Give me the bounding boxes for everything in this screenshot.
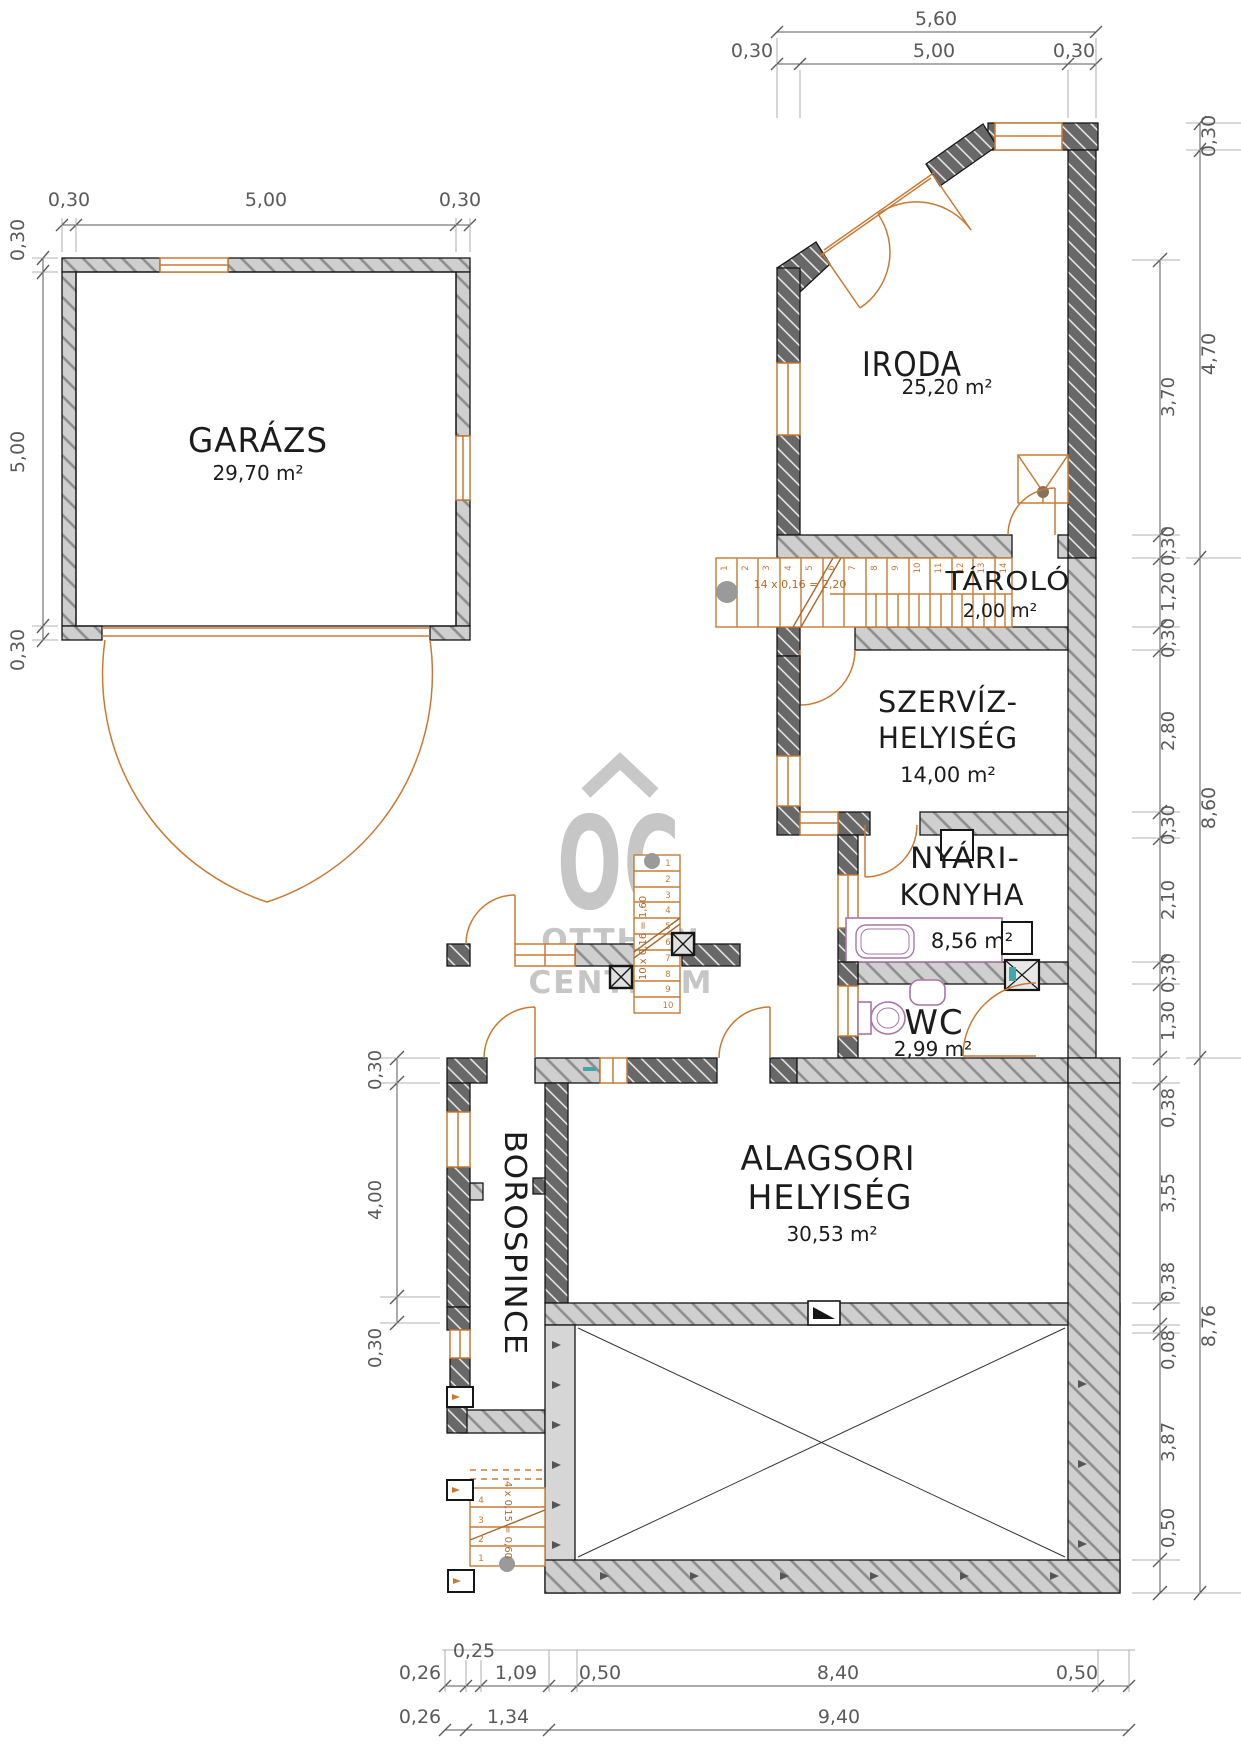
dim-label: 0,26 — [399, 1662, 441, 1684]
wall-segment — [797, 1058, 1068, 1083]
step-number: 4 — [665, 906, 670, 916]
szerviz-label-line2: HELYISÉG — [878, 721, 1018, 755]
dim-label: 1,34 — [487, 1706, 529, 1728]
lower-row-openings — [484, 1007, 770, 1083]
step-number: 5 — [805, 565, 815, 570]
dim-extensions — [32, 258, 58, 640]
stair-start-dot — [716, 581, 738, 603]
garage-door — [102, 628, 432, 902]
step-number: 3 — [478, 1516, 484, 1526]
step-number: 11 — [934, 563, 944, 574]
wall-segment — [1039, 962, 1068, 984]
wall-segment — [62, 272, 76, 626]
dim-label: 0,30 — [1158, 526, 1179, 566]
wall-segment — [777, 656, 800, 756]
wall-segment — [1068, 1083, 1120, 1593]
door-arc — [963, 983, 1036, 1056]
dim-label: 0,25 — [453, 1640, 495, 1662]
dim-label: 8,40 — [817, 1662, 859, 1684]
wall-segment — [777, 435, 800, 535]
wall-segment — [456, 272, 470, 436]
door-frame — [824, 172, 935, 250]
wall-segment — [777, 535, 1012, 558]
dim-label: 0,50 — [1158, 1508, 1179, 1548]
step-number: 6 — [665, 938, 670, 948]
door-leaf — [822, 253, 860, 308]
step-number: 4 — [784, 565, 794, 570]
szerviz-label-line1: SZERVÍZ- — [878, 685, 1018, 719]
door-arc — [103, 640, 267, 902]
dim-label: 3,70 — [1158, 377, 1179, 417]
tarolo-label: TÁROLÓ — [944, 565, 1070, 597]
wall-segment — [770, 1058, 797, 1083]
iroda-area: 25,20 m² — [901, 375, 992, 399]
dim-label: 0,50 — [1056, 1662, 1098, 1684]
washbasin — [910, 980, 945, 1005]
chimney-flue — [1005, 960, 1039, 990]
toilet-seat — [877, 1008, 899, 1028]
dim-label: 9,40 — [818, 1706, 860, 1728]
step-number: 9 — [891, 565, 901, 570]
szerviz-area: 14,00 m² — [900, 763, 996, 787]
dim-label: 5,60 — [915, 8, 957, 30]
wall-segment — [545, 1083, 568, 1303]
borospince-label: BOROSPINCE — [497, 1131, 532, 1356]
konyha-label-line1: NYÁRI- — [910, 841, 1020, 875]
toilet-tank — [858, 1002, 871, 1034]
step-number: 10 — [663, 1001, 674, 1011]
wall-segment — [62, 626, 102, 640]
wall-segment — [777, 268, 800, 363]
dim-label: 0,30 — [365, 1050, 386, 1090]
wall-segment — [777, 806, 800, 835]
wall-segment — [447, 1058, 487, 1083]
door-arc — [484, 1007, 535, 1058]
wall-segment — [838, 962, 858, 986]
dim-label: 0,30 — [1158, 805, 1179, 845]
wall-segment — [447, 1167, 470, 1307]
door-arc — [860, 214, 890, 308]
dim-label: 0,30 — [1053, 40, 1095, 62]
konyha-area: 8,56 m² — [931, 929, 1013, 953]
door-leaf — [933, 175, 971, 230]
wall-segment — [228, 258, 470, 272]
dim-label: 0,30 — [365, 1328, 386, 1368]
dim-label: 0,38 — [1158, 1088, 1179, 1128]
dim-label: 0,08 — [1158, 1330, 1179, 1370]
garage-area: 29,70 m² — [212, 461, 303, 485]
door-frame — [820, 178, 931, 256]
dim-label: 5,00 — [7, 431, 29, 473]
step-number: 7 — [665, 954, 670, 964]
wall-segment — [1068, 558, 1096, 1058]
dim-label: 1,09 — [495, 1662, 537, 1684]
dim-label: 0,30 — [1198, 115, 1220, 157]
tarolo-area: 2,00 m² — [963, 600, 1037, 622]
dim-label: 3,55 — [1158, 1173, 1179, 1213]
dim-label: 0,30 — [48, 189, 90, 211]
alagsori-vent — [808, 1301, 840, 1325]
terrace-left-wall — [545, 1325, 575, 1593]
dim-extensions — [380, 1058, 440, 1323]
dim-extensions — [1132, 123, 1241, 1593]
dim-label: 0,30 — [7, 629, 29, 671]
wall-segment — [838, 835, 858, 875]
terrace — [545, 1325, 1120, 1593]
alagsori-label-line2: HELYISÉG — [748, 1177, 913, 1218]
step-number: 2 — [665, 875, 670, 885]
garage-openings — [102, 258, 470, 902]
wall-segment — [1068, 150, 1096, 558]
fireplace-dot — [1037, 486, 1049, 498]
step-number: 10 — [913, 563, 923, 574]
floor-plan-page: OC OTTHON CENTRUM GARÁZS 29,70 m² — [0, 0, 1241, 1754]
stair-start-dot — [644, 853, 660, 869]
step-number: 5 — [665, 922, 670, 932]
step-number: 6 — [827, 565, 837, 570]
fireplace — [1018, 455, 1068, 503]
wall-nub — [470, 1183, 483, 1200]
lower-row-walls — [447, 1058, 1120, 1083]
stair-small-label: 4 x 0,15 = 0,60 — [502, 1481, 513, 1559]
kitchen-sink-basin — [861, 929, 909, 954]
door-arc — [466, 895, 515, 944]
step-number: 2 — [741, 565, 751, 570]
wall-segment — [777, 627, 800, 656]
dim-label: 0,30 — [439, 189, 481, 211]
step-number: 8 — [665, 970, 670, 980]
door-arc — [878, 202, 971, 230]
dim-label: 5,00 — [245, 189, 287, 211]
step-number: 9 — [665, 985, 670, 995]
wall-segment — [447, 944, 470, 966]
dim-label: 5,00 — [913, 40, 955, 62]
step-number: 1 — [478, 1554, 484, 1564]
dim-label: 1,30 — [1158, 1001, 1179, 1041]
dim-label: 0,30 — [1158, 618, 1179, 658]
wall-segment — [62, 258, 160, 272]
dim-label: 4,70 — [1198, 333, 1220, 375]
watermark-chevron-icon — [586, 761, 654, 793]
dim-label: 0,38 — [1158, 1262, 1179, 1302]
wall-segment — [430, 626, 470, 640]
stair-dashed-steps — [470, 1470, 545, 1479]
stair-outdoor-label: 10 x 0,16 = 1,60 — [638, 896, 649, 980]
chamfer-wall — [926, 124, 997, 186]
flue-vent — [1009, 967, 1016, 981]
dim-label: 0,30 — [7, 219, 29, 261]
wall-segment — [1058, 535, 1068, 558]
step-number: 8 — [870, 565, 880, 570]
wall-segment — [456, 500, 470, 626]
step-number: 1 — [665, 859, 670, 869]
step-number: 3 — [762, 565, 772, 570]
step-number: 1 — [720, 565, 730, 570]
step-number: 7 — [848, 565, 858, 570]
terrace-bottom-wall — [545, 1560, 1120, 1593]
dim-label: 0,30 — [1158, 953, 1179, 993]
wall-segment — [575, 944, 635, 966]
dim-label: 8,76 — [1198, 1305, 1220, 1347]
court-walls — [447, 944, 740, 966]
alagsori-area: 30,53 m² — [786, 1222, 877, 1246]
iroda-openings — [777, 123, 1068, 503]
dim-label: 1,20 — [1158, 572, 1179, 612]
dim-label: 2,10 — [1158, 880, 1179, 920]
door-arc — [719, 1007, 770, 1058]
konyha-label-line2: KONYHA — [900, 878, 1025, 912]
dim-label: 0,26 — [399, 1706, 441, 1728]
wall-segment — [627, 1058, 717, 1083]
stair-main-label: 14 x 0,16 = 2,20 — [754, 578, 847, 591]
dim-label: 0,30 — [731, 40, 773, 62]
wall-segment — [838, 1036, 858, 1058]
dim-label: 4,00 — [365, 1180, 386, 1220]
wall-nub — [533, 1178, 545, 1194]
step-number: 4 — [478, 1496, 484, 1506]
dim-extensions — [62, 218, 470, 252]
wall-segment — [447, 1407, 467, 1433]
wall-tick-triangles — [552, 1341, 1087, 1580]
wall-segment — [460, 1410, 545, 1433]
wall-segment — [855, 627, 1068, 650]
dim-label: 0,50 — [579, 1662, 621, 1684]
dim-label: 8,60 — [1198, 787, 1220, 829]
wall-segment — [447, 1307, 470, 1330]
alagsori-label-line1: ALAGSORI — [741, 1139, 916, 1179]
door-arc — [267, 640, 432, 902]
garage-label: GARÁZS — [188, 420, 328, 461]
step-number: 2 — [478, 1535, 484, 1545]
dim-label: 2,80 — [1158, 711, 1179, 751]
dim-label: 3,87 — [1158, 1422, 1179, 1462]
step-number: 3 — [665, 891, 670, 901]
door-arc — [800, 650, 855, 705]
french-door — [820, 172, 971, 308]
wall-segment — [447, 1083, 470, 1112]
wall-segment — [1068, 1058, 1120, 1083]
floor-plan-drawing: OC OTTHON CENTRUM GARÁZS 29,70 m² — [0, 0, 1241, 1754]
